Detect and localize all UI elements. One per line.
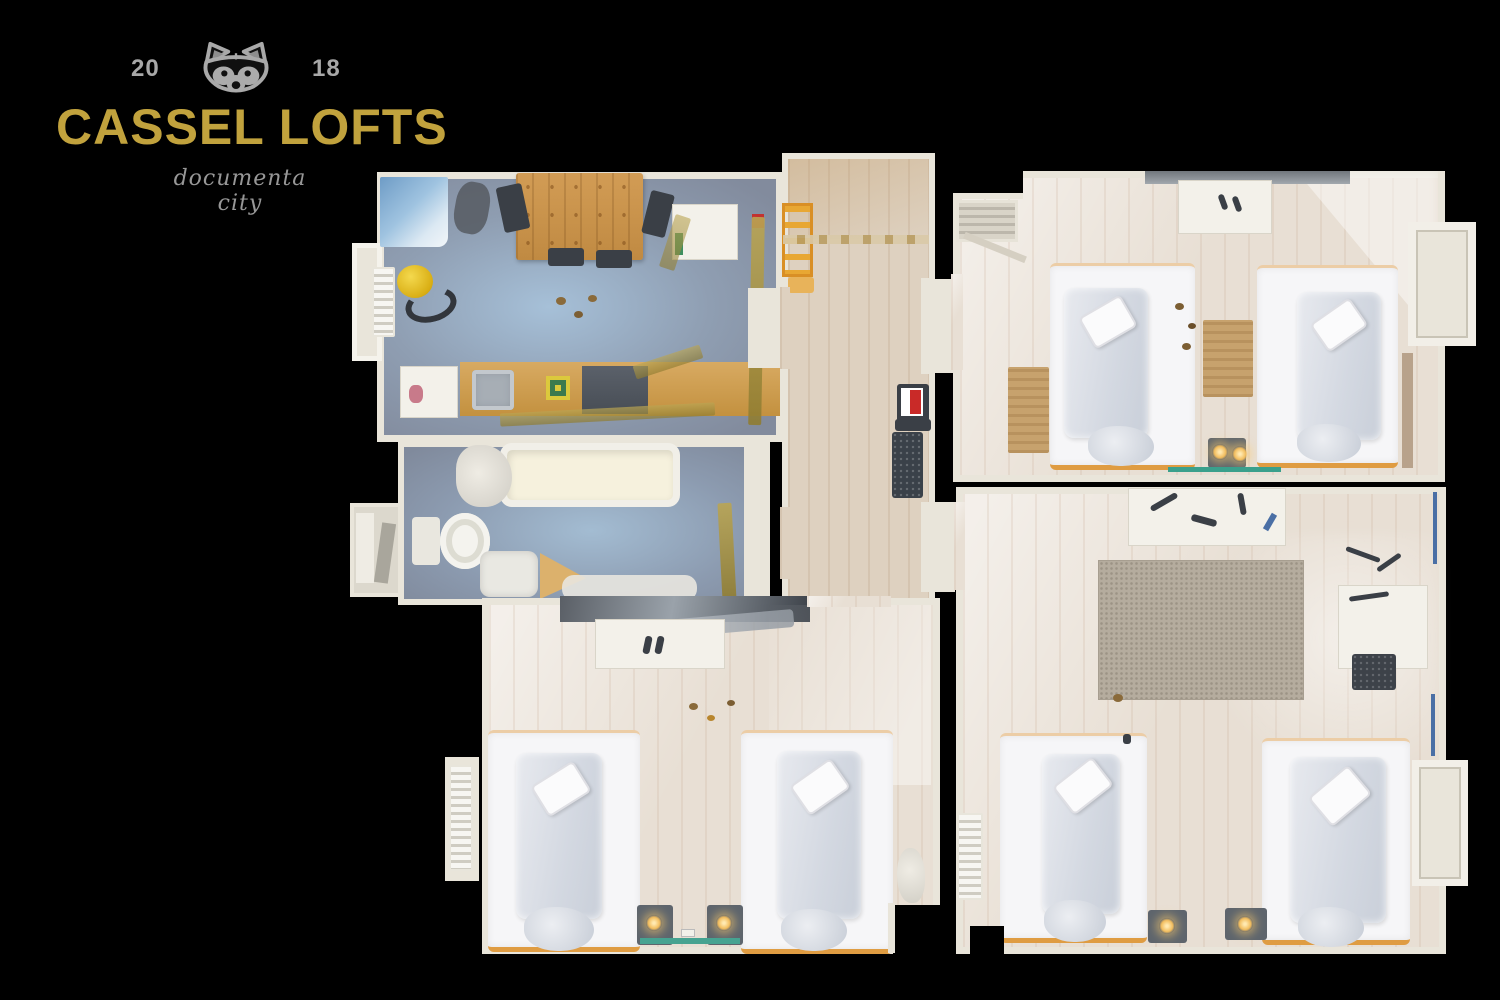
shoes xyxy=(1231,195,1242,212)
trivet xyxy=(546,376,570,400)
door-opening xyxy=(807,596,891,607)
room-bedroom-bottom-right xyxy=(956,487,1446,954)
door-alcove xyxy=(748,288,783,368)
desk xyxy=(595,619,725,669)
floorplan xyxy=(0,0,1500,1000)
glass-shelf xyxy=(640,938,740,944)
shoes xyxy=(1217,193,1228,210)
room-kitchen-living xyxy=(377,172,783,442)
washbasin xyxy=(480,551,538,597)
chair xyxy=(548,248,584,266)
desk-chair xyxy=(1352,654,1396,690)
radiator xyxy=(372,267,395,337)
wardrobe-items xyxy=(1150,492,1179,512)
bed xyxy=(1257,265,1398,468)
lamp xyxy=(1212,444,1228,460)
wardrobe-items xyxy=(1263,513,1277,532)
wardrobe-items xyxy=(1191,514,1218,527)
radiator xyxy=(957,813,983,900)
threshold-strip xyxy=(1168,467,1281,472)
rug xyxy=(1203,320,1253,397)
sign-red-band xyxy=(910,390,921,414)
page: 20 18 CASSEL LOFTS documenta city xyxy=(0,0,1500,1000)
floor-item xyxy=(1182,343,1191,350)
towel-pile xyxy=(456,445,512,507)
rug xyxy=(1008,367,1049,453)
desk xyxy=(1178,180,1272,234)
bed-foot-blanket xyxy=(524,907,594,951)
floor-item xyxy=(574,311,583,318)
wall-notch xyxy=(893,905,943,957)
toilet-tank xyxy=(412,517,440,565)
bay-window xyxy=(1408,222,1476,346)
door-opening xyxy=(780,287,790,369)
sign-stand xyxy=(897,384,929,422)
wall-edge xyxy=(953,193,1023,199)
bed-foot-blanket xyxy=(1297,424,1361,462)
ladder-foot xyxy=(788,277,814,293)
floor-item xyxy=(707,715,715,721)
wall-accent xyxy=(1431,694,1435,756)
dining-table xyxy=(516,173,643,260)
door-opening xyxy=(780,507,790,579)
shoes xyxy=(642,635,653,654)
blanket-pile xyxy=(897,848,925,903)
alcove-clutter xyxy=(356,513,374,583)
tape-seam xyxy=(783,235,929,244)
floor-item xyxy=(1188,323,1196,329)
bed-foot-blanket xyxy=(1088,426,1154,466)
bed-foot-blanket xyxy=(1044,900,1106,942)
wall-notch xyxy=(970,926,1004,956)
wall-accent xyxy=(1433,492,1437,564)
sink xyxy=(472,370,514,410)
wall-column xyxy=(744,441,770,599)
shoes xyxy=(654,635,665,654)
lamp xyxy=(646,915,662,931)
lamp xyxy=(1159,918,1175,934)
floor-item xyxy=(1123,734,1131,744)
room-bedroom-bottom-left xyxy=(482,598,940,954)
door-opening xyxy=(951,274,963,370)
desk xyxy=(380,177,448,247)
alcove-clutter xyxy=(374,522,396,583)
chair xyxy=(596,250,632,268)
door-connector xyxy=(929,502,955,592)
bathtub xyxy=(500,443,680,507)
wardrobe xyxy=(1128,488,1286,546)
floor-item xyxy=(1113,694,1123,702)
bed xyxy=(1050,263,1195,470)
clutter xyxy=(1376,552,1402,572)
floor-item xyxy=(689,703,698,710)
room-hallway xyxy=(782,153,935,618)
wall-edge xyxy=(888,903,895,953)
cabinet xyxy=(400,366,458,418)
sign-base xyxy=(895,419,931,431)
power-socket xyxy=(681,929,695,937)
bed xyxy=(488,730,640,952)
bed-foot-blanket xyxy=(781,909,847,951)
clutter xyxy=(1345,546,1381,563)
lamp xyxy=(716,915,732,931)
cabinet-clutter xyxy=(409,385,423,403)
desk-items xyxy=(1349,591,1389,602)
lamp xyxy=(1237,916,1253,932)
bed xyxy=(1000,733,1147,943)
floor-item xyxy=(727,700,735,706)
camera-gear xyxy=(451,179,494,236)
rug xyxy=(1098,560,1304,700)
door-opening xyxy=(954,502,965,590)
wall-smudge xyxy=(1402,353,1413,468)
room-bathroom xyxy=(398,441,770,605)
floor-item xyxy=(588,295,597,302)
bay-window xyxy=(445,757,479,881)
bathroom-alcove xyxy=(350,503,402,597)
doormat xyxy=(892,432,923,498)
bay-window xyxy=(1412,760,1468,886)
floor-item xyxy=(556,297,566,305)
floor-item xyxy=(1175,303,1184,310)
bed-foot-blanket xyxy=(1298,907,1364,947)
bed xyxy=(1262,738,1410,945)
tape-strip xyxy=(717,503,736,602)
bed xyxy=(741,730,893,954)
wardrobe-items xyxy=(1237,493,1247,516)
room-bedroom-top-right xyxy=(953,171,1445,482)
radiator xyxy=(449,765,473,871)
lamp xyxy=(1232,446,1248,462)
